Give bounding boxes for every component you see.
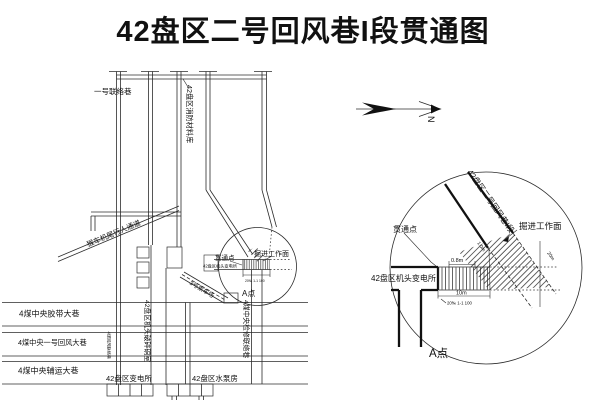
- junction-small-circle: 掘进工作面 贯通点 42盘区机头变电所 20‰ 1-1 100 A点: [203, 227, 297, 306]
- mini-dim-note: 20‰ 1-1 100: [245, 279, 265, 283]
- dim-pillar-width: 0.8m: [451, 258, 464, 264]
- point-a-label: A点: [429, 347, 448, 360]
- label-shuibengfang: 42盘区水泵房: [192, 373, 238, 383]
- label-xiaofang: 42盘区消防材料库: [185, 85, 194, 143]
- label-fuyun: 4煤中央辅运大巷: [18, 366, 78, 376]
- drawing-stage: 42盘区二号回风巷I段贯通图 N: [0, 0, 600, 400]
- label-huifeng-lianluo: 4煤回风联络巷: [106, 332, 113, 360]
- label-biandiansuo: 42盘区变电所: [106, 373, 152, 383]
- label-lianluo-1: 一号联络巷: [94, 86, 132, 96]
- mini-face-label: 掘进工作面: [254, 249, 289, 258]
- mine-plan-svg: 42盘区二号回风巷I段贯通图 N: [0, 0, 600, 400]
- through-point-label: 贯通点: [393, 224, 417, 234]
- face-label: 掘进工作面: [519, 221, 562, 231]
- station-boxes: [107, 384, 213, 400]
- junction-detail-circle: 0.8m 10m 20‰ 1-1 100 1.0m 20m 贯通点 42盘区机头…: [371, 167, 582, 364]
- label-houche: 猴车机尾行人通道: [85, 218, 141, 249]
- dim-pillar-length: 10m: [456, 291, 467, 297]
- label-jianxiu: 4煤中央检修联络巷: [242, 300, 251, 358]
- label-jiaodai: 4煤中央胶带大巷: [19, 309, 79, 319]
- north-label: N: [426, 116, 436, 123]
- north-arrow: N: [356, 102, 441, 123]
- mini-substation-label: 42盘区机头变电所: [203, 263, 237, 270]
- mini-point-a-label: A点: [242, 289, 255, 298]
- page-title: 42盘区二号回风巷I段贯通图: [116, 14, 489, 48]
- mini-through-point-label: 贯通点: [215, 253, 235, 262]
- dim-note: 20‰ 1-1 100: [447, 301, 472, 306]
- plan-labels: 一号联络巷 42盘区消防材料库 猴车机尾行人通道 3号乘车场 4煤中央胶带大巷 …: [18, 79, 251, 383]
- substation-label: 42盘区机头变电所: [371, 273, 436, 283]
- label-jitou-posui: 42盘区机头破碎硐室: [143, 300, 152, 362]
- label-chengchechang: 3号乘车场: [188, 279, 216, 300]
- dim-remaining: 20m: [545, 251, 555, 262]
- label-huifeng-daxiang: 4煤中央一号回风大巷: [18, 338, 87, 347]
